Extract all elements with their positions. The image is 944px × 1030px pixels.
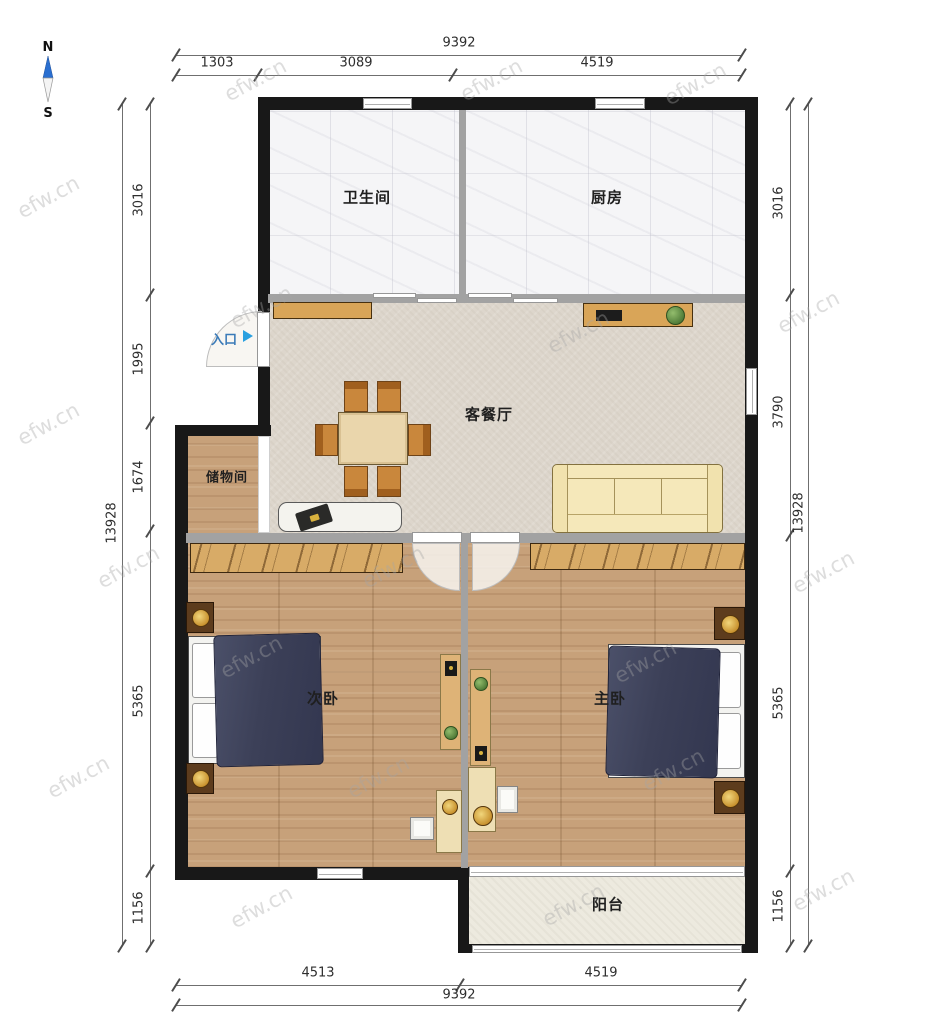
sofa [552,464,723,533]
floorplan-canvas: N S 入口 [0,0,944,1030]
desk-secondary [440,654,461,750]
dining-chair [344,466,368,497]
watermark: efw.cn [43,751,113,804]
window-living-right [746,368,757,415]
dim-top-seg: 1303 [200,56,233,71]
sliding-door-bathroom-panel-1 [373,293,416,298]
nightstand [186,602,214,633]
desk-plant-icon [444,726,458,740]
window-kitchen-top [595,98,645,109]
dim-bottom-overall: 9392 [442,988,475,1003]
dim-line-bottom-overall [176,1005,742,1006]
living-dining-label: 客餐厅 [465,404,513,425]
sofa-armrest [707,465,722,532]
watermark: efw.cn [788,864,858,917]
window-balcony-bottom [472,945,742,953]
dining-chair [377,381,401,412]
dim-right-seg: 1156 [772,889,787,922]
partition-bath-kitchen-divider [459,110,466,294]
partition-central-bedrooms [461,543,468,868]
master-bedroom-door-opening [470,532,520,543]
storage-doorway [258,436,270,533]
entrance-arrow-icon [243,330,253,342]
nightstand [714,781,745,814]
compass-north-label: N [43,40,54,55]
dim-right-overall: 13928 [792,492,807,533]
dim-top-overall: 9392 [442,36,475,51]
sliding-door-kitchen-panel-2 [513,298,558,303]
bathroom-label: 卫生间 [343,187,391,208]
kitchen-label: 厨房 [591,187,623,208]
dim-line-top-overall [176,55,742,56]
dim-line-top-segments [176,75,742,76]
compass-needle-icon [38,56,58,104]
secondary-bedroom-label: 次卧 [307,688,339,709]
dim-line-left-segments [150,104,151,946]
wall-storage-top [175,425,271,436]
shoe-cabinet [273,302,372,319]
desk-chair-secondary [410,817,434,840]
sideboard [583,303,693,327]
window-bathroom-top [363,98,412,109]
small-desk-secondary [436,790,462,853]
secondary-bedroom-door-opening [412,532,462,543]
wall-balcony-left [458,867,469,953]
nightstand [714,607,745,640]
sliding-door-bathroom-panel-2 [417,298,457,303]
sofa-armrest [553,465,568,532]
monitor-icon [475,746,487,761]
sofa-cushion [615,478,662,514]
sliding-window-balcony-top [469,866,745,877]
master-bedroom-label: 主卧 [594,688,626,709]
watermark: efw.cn [93,541,163,594]
dim-left-seg: 1995 [132,342,147,375]
dining-chair [377,466,401,497]
dim-bottom-seg: 4519 [584,966,617,981]
desk-plant-icon [474,677,488,691]
wall-left-lower [175,425,188,880]
sideboard-tv-icon [596,310,622,321]
dim-left-seg: 5365 [132,684,147,717]
dining-chair [315,424,338,456]
sliding-door-kitchen-panel-1 [468,293,512,298]
dim-right-seg: 3016 [772,186,787,219]
bed-master [608,644,745,778]
tv-icon [295,503,333,532]
wall-right [745,97,758,953]
dim-bottom-seg: 4513 [301,966,334,981]
compass-south-label: S [43,106,52,121]
wall-left-upper [258,97,270,435]
sideboard-plant-icon [666,306,685,325]
desk-chair-master [497,786,518,813]
wall-top [258,97,758,110]
sofa-cushion [568,478,615,514]
dim-line-left-overall [122,104,123,946]
dining-chair [408,424,431,456]
watermark: efw.cn [226,881,296,934]
duvet [605,646,720,779]
sofa-seat-front [568,514,707,533]
entrance-door-opening [257,312,270,367]
compass: N S [28,40,68,118]
watermark: efw.cn [13,398,83,451]
watermark: efw.cn [13,171,83,224]
sofa-cushion [662,478,707,514]
dim-left-overall: 13928 [105,502,120,543]
dim-left-seg: 1156 [132,891,147,924]
dim-right-seg: 3790 [772,395,787,428]
tv-stand [278,502,402,532]
nightstand [186,763,214,794]
wardrobe-secondary [190,543,403,573]
partition-living-bedrooms [186,533,745,543]
dim-top-seg: 3089 [339,56,372,71]
dim-right-seg: 5365 [772,686,787,719]
balcony-label: 阳台 [592,894,624,915]
watermark: efw.cn [788,546,858,599]
small-desk-master [468,767,496,832]
dining-chair [344,381,368,412]
storage-label: 储物间 [206,467,248,486]
pillow [192,703,218,758]
dim-left-seg: 3016 [132,183,147,216]
desk-master [470,669,491,766]
sofa-back [567,465,708,479]
bed-secondary [188,636,321,764]
dim-line-right-overall [808,104,809,946]
window-secondary-bedroom-bottom [317,868,363,879]
wardrobe-master [530,543,745,570]
dining-table [338,412,408,465]
entrance-label: 入口 [211,329,237,348]
monitor-icon [445,661,457,676]
dim-top-seg: 4519 [580,56,613,71]
dim-left-seg: 1674 [132,460,147,493]
